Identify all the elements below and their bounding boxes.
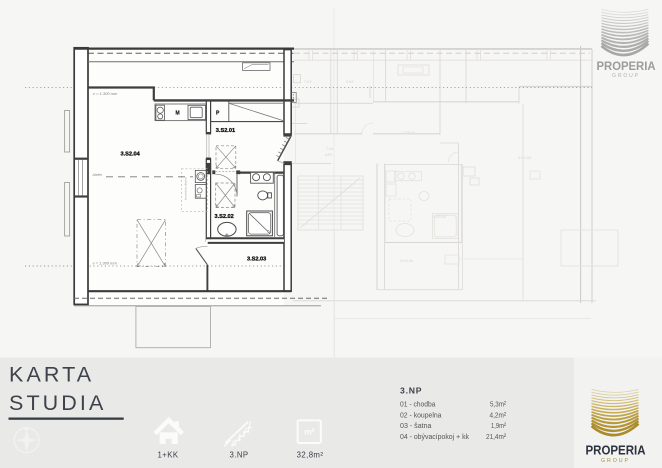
- svg-text:PROPERIA: PROPERIA: [597, 59, 656, 73]
- svg-text:1.S9.01: 1.S9.01: [402, 131, 415, 135]
- svg-text:7.03: 7.03: [304, 80, 311, 84]
- svg-text:KARTA: KARTA: [9, 363, 94, 387]
- svg-text:01 - chodba: 01 - chodba: [400, 400, 436, 409]
- svg-text:32,8m²: 32,8m²: [297, 451, 324, 460]
- svg-text:AP2: AP2: [325, 153, 332, 157]
- svg-text:3.S2.04: 3.S2.04: [121, 151, 141, 157]
- svg-text:1,9m²: 1,9m²: [491, 421, 506, 430]
- svg-text:03 - šatna: 03 - šatna: [400, 421, 432, 430]
- svg-text:21,4m²: 21,4m²: [486, 432, 506, 441]
- svg-text:3.S3.03: 3.S3.03: [400, 259, 413, 263]
- svg-text:3.S1.04: 3.S1.04: [518, 156, 532, 160]
- svg-text:v = 1.300 mm: v = 1.300 mm: [93, 91, 118, 96]
- svg-text:7.04: 7.04: [326, 147, 334, 151]
- svg-text:m²: m²: [304, 427, 315, 437]
- svg-text:v = 1.300 mm: v = 1.300 mm: [93, 261, 118, 266]
- svg-text:3.S2.02: 3.S2.02: [215, 214, 234, 220]
- svg-text:3.S3.02: 3.S3.02: [433, 215, 446, 219]
- svg-text:04 - obývacípokoj + kk: 04 - obývacípokoj + kk: [400, 432, 469, 441]
- svg-text:keramicka dlazba: keramicka dlazba: [183, 177, 187, 200]
- svg-text:5,3m²: 5,3m²: [490, 400, 506, 409]
- svg-text:M: M: [176, 110, 180, 116]
- svg-text:STUDIA: STUDIA: [9, 391, 106, 415]
- svg-text:Atelier: Atelier: [92, 173, 103, 177]
- svg-text:3.S2.01: 3.S2.01: [216, 128, 235, 134]
- svg-text:GROUP: GROUP: [601, 458, 630, 464]
- svg-text:4,2m²: 4,2m²: [490, 410, 507, 419]
- svg-text:1+KK: 1+KK: [158, 451, 179, 460]
- svg-text:GROUP: GROUP: [612, 73, 640, 79]
- svg-text:3.NP: 3.NP: [230, 451, 249, 460]
- svg-text:02 - koupelna: 02 - koupelna: [400, 410, 442, 419]
- svg-text:3.03: 3.03: [346, 80, 353, 84]
- svg-text:sachta: sachta: [368, 85, 372, 98]
- svg-text:3.S2.03: 3.S2.03: [247, 257, 266, 263]
- svg-text:PROPERIA: PROPERIA: [586, 443, 646, 457]
- svg-text:3.NP: 3.NP: [400, 386, 422, 396]
